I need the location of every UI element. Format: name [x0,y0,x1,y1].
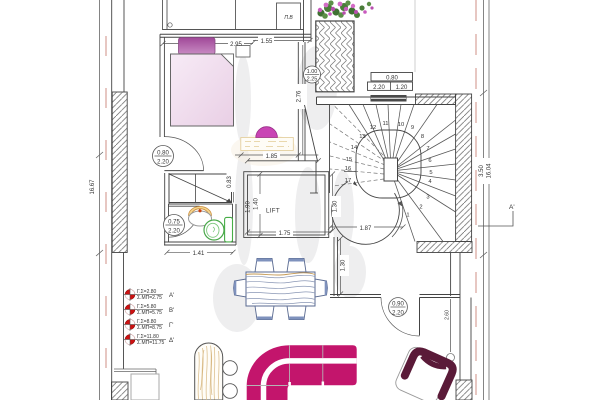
svg-text:2.20: 2.20 [392,311,404,317]
svg-text:1.90: 1.90 [246,201,252,213]
svg-text:Σ.ΜΠ=5.75: Σ.ΜΠ=5.75 [137,310,162,316]
svg-text:3.50: 3.50 [479,165,485,177]
svg-text:1.40: 1.40 [254,198,260,210]
svg-text:0.83: 0.83 [227,176,233,188]
svg-text:17: 17 [345,178,351,184]
svg-text:11: 11 [382,121,388,127]
svg-text:0.90: 0.90 [392,302,404,308]
svg-text:1.75: 1.75 [279,231,291,237]
svg-text:16.04: 16.04 [487,163,493,179]
svg-text:15: 15 [346,157,352,163]
svg-text:2.20: 2.20 [373,85,385,91]
svg-text:Β': Β' [169,308,174,314]
svg-text:2.20: 2.20 [168,229,180,235]
svg-text:2.76: 2.76 [296,90,302,102]
svg-text:1.87: 1.87 [360,226,372,232]
svg-text:Π.Β: Π.Β [284,15,293,21]
svg-text:Σ.ΜΠ=2.75: Σ.ΜΠ=2.75 [137,295,162,301]
svg-text:13: 13 [359,134,365,140]
svg-text:5: 5 [429,170,432,176]
svg-text:Σ.ΜΠ=8.75: Σ.ΜΠ=8.75 [137,325,162,331]
svg-text:0.80: 0.80 [386,75,398,81]
svg-text:2.20: 2.20 [157,160,169,166]
svg-text:0.75: 0.75 [168,220,180,226]
svg-text:1.20: 1.20 [396,85,408,91]
svg-text:2.25: 2.25 [307,77,318,83]
svg-text:7: 7 [426,146,429,152]
svg-text:1.30: 1.30 [341,259,347,271]
svg-text:Γ': Γ' [169,323,173,329]
svg-text:1.30: 1.30 [333,200,339,212]
svg-text:LIFT: LIFT [266,208,280,215]
svg-text:Α': Α' [169,293,174,299]
svg-text:1.55: 1.55 [261,39,273,45]
svg-text:A': A' [509,204,515,211]
svg-text:3: 3 [426,195,429,201]
svg-text:16.67: 16.67 [90,179,96,195]
svg-text:12: 12 [370,125,376,131]
svg-text:10: 10 [398,122,404,128]
svg-text:1.41: 1.41 [193,251,205,257]
svg-text:Σ.ΜΠ=11.75: Σ.ΜΠ=11.75 [137,340,165,346]
svg-text:8: 8 [421,134,424,140]
svg-text:1.85: 1.85 [266,154,278,160]
svg-text:6: 6 [428,158,431,164]
svg-text:2: 2 [419,205,422,211]
svg-text:14: 14 [351,145,358,151]
svg-text:0.80: 0.80 [157,151,169,157]
svg-text:9: 9 [411,125,414,131]
svg-text:Δ': Δ' [169,338,174,344]
svg-text:2.60: 2.60 [445,310,451,320]
svg-text:1: 1 [406,213,409,219]
svg-text:1.00: 1.00 [307,69,318,75]
